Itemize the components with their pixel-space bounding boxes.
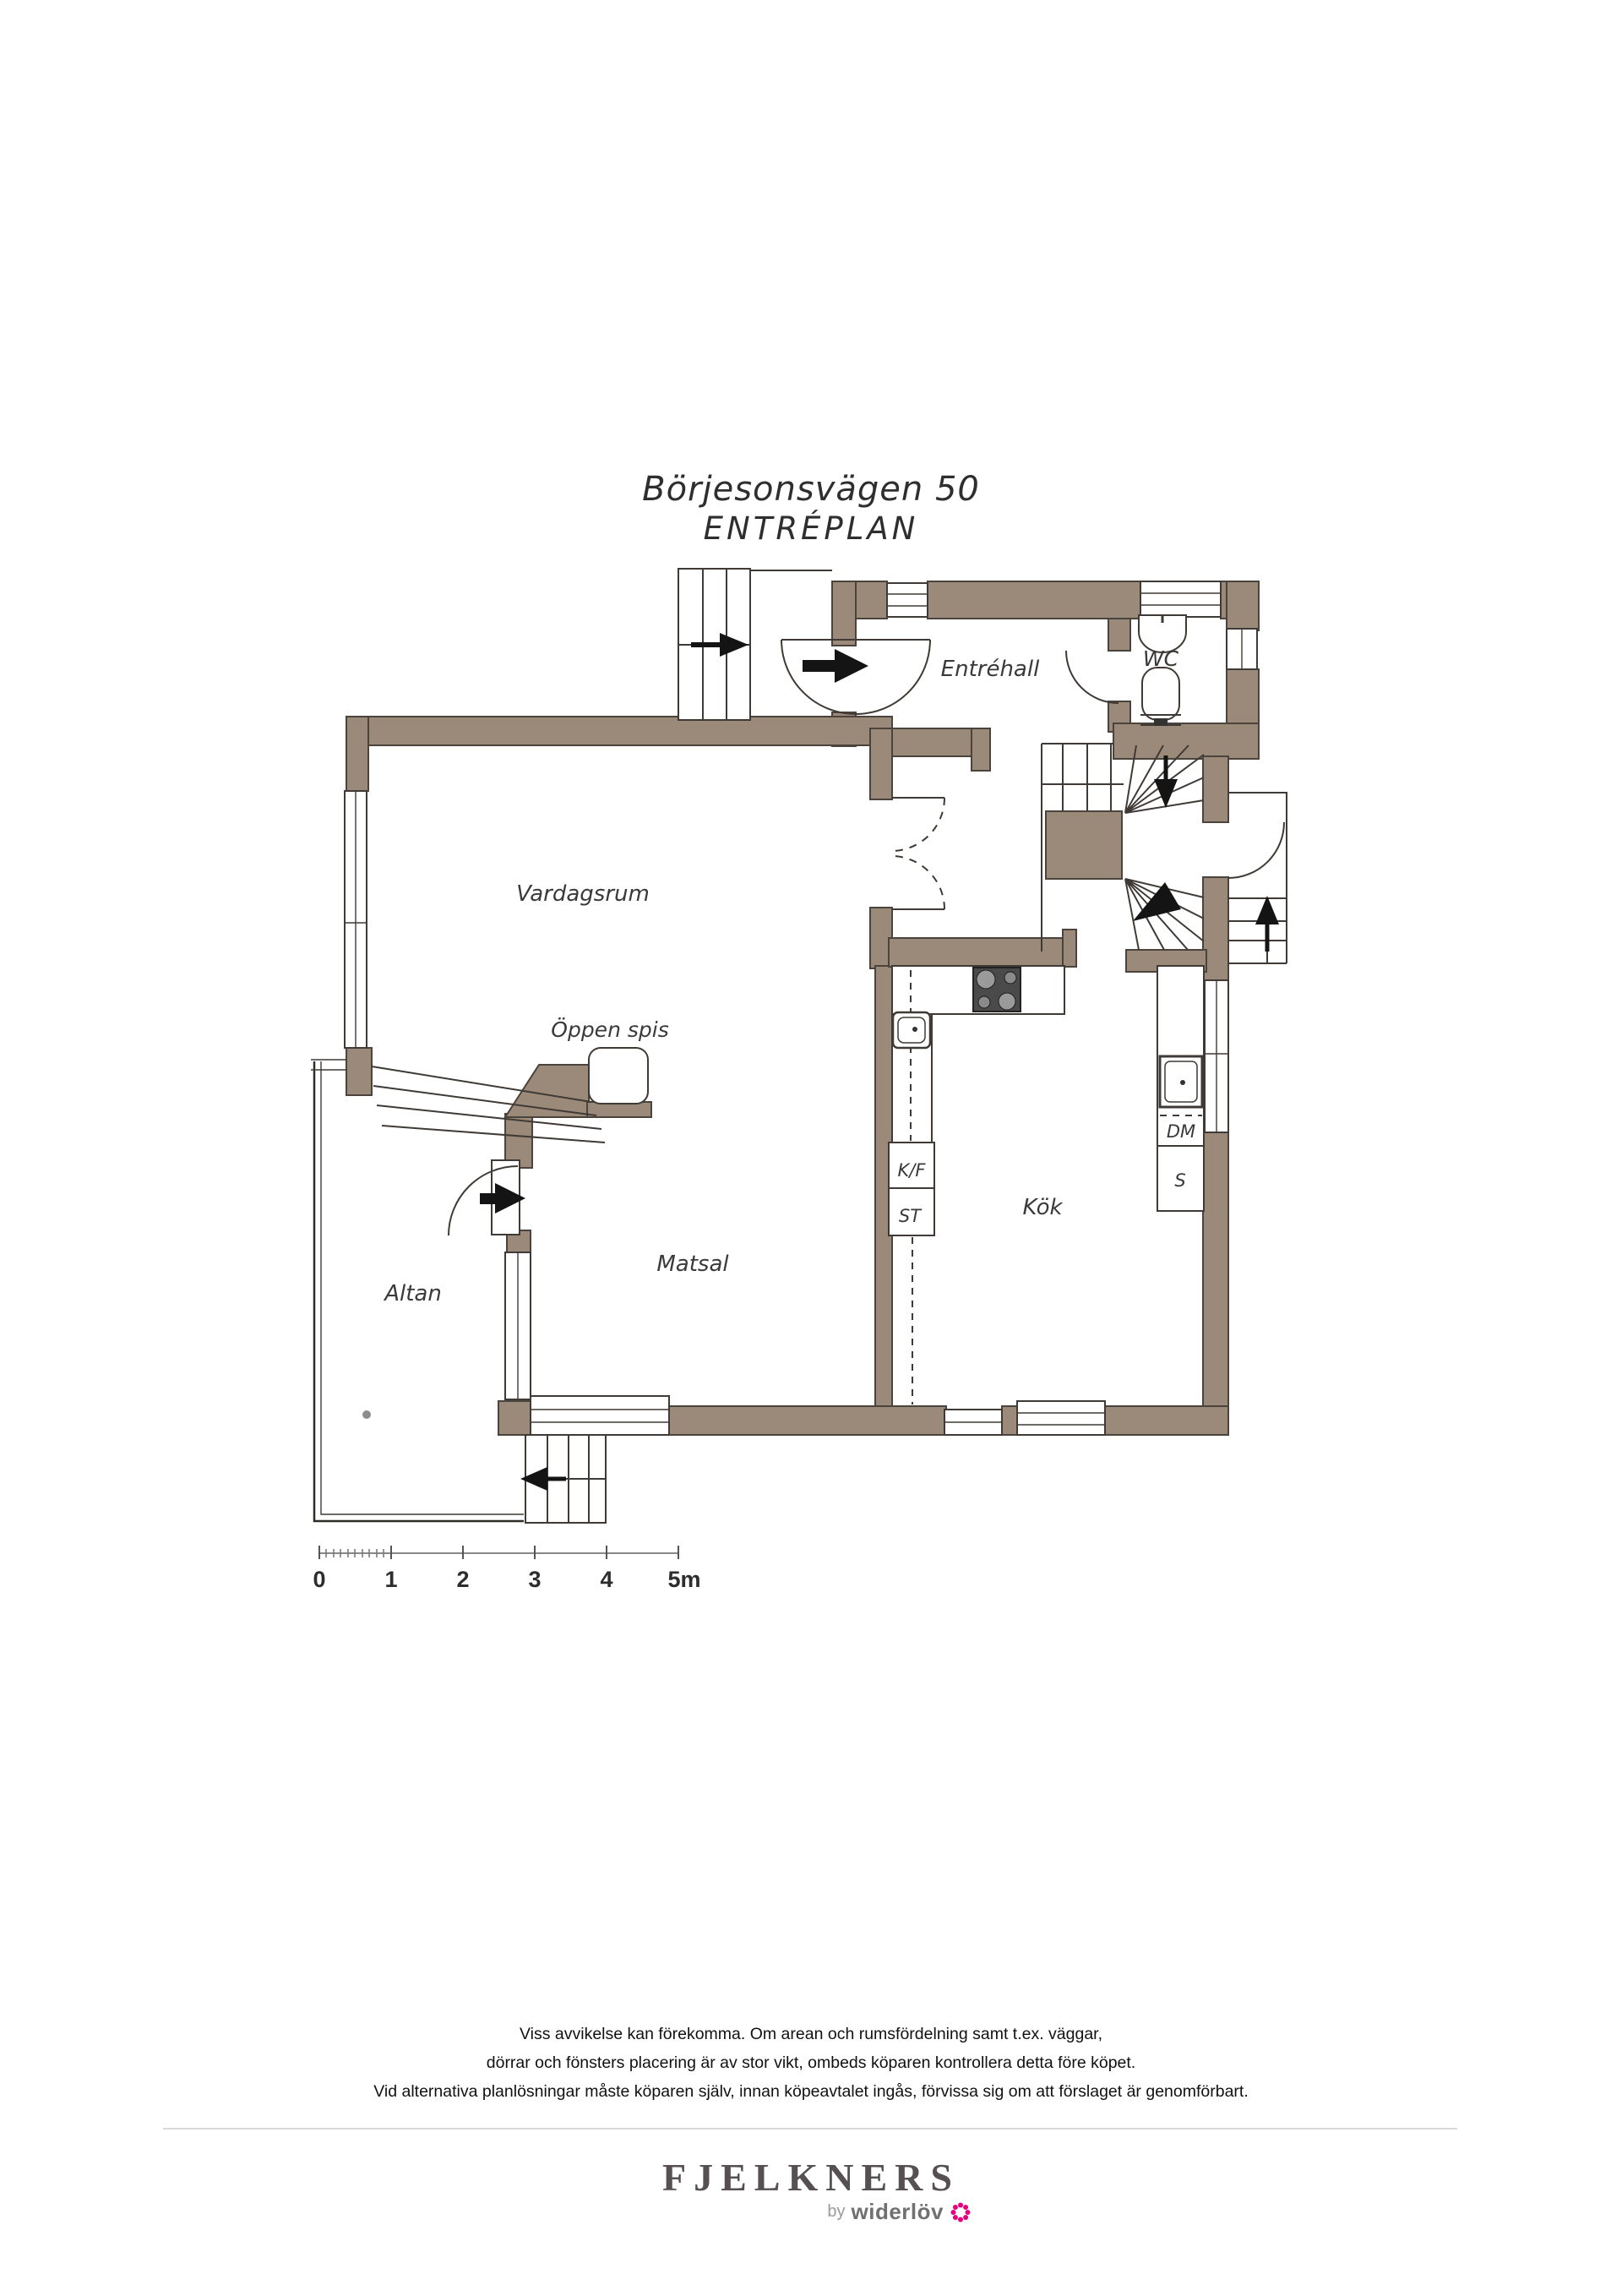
scale-bar: 0 1 2 3 4 5m [313, 1546, 700, 1592]
window [944, 1410, 1002, 1435]
widerlov-flower-icon [950, 2201, 972, 2223]
disclaimer-line-2: dörrar och fönsters placering är av stor… [0, 2048, 1622, 2077]
scale-label-3: 3 [528, 1567, 541, 1592]
stairs-down-arrow [1154, 779, 1178, 808]
brand-logo: FJELKNERS [0, 2155, 1622, 2200]
fixture-label-kf: K/F [898, 1160, 927, 1181]
altan-terrace [311, 1060, 606, 1523]
entry-arrow [835, 649, 868, 683]
address-title: Börjesonsvägen 50 [0, 470, 1622, 509]
double-door-arcs [892, 798, 944, 909]
window [505, 1252, 531, 1399]
wc-door-arc [1066, 651, 1119, 703]
disclaimer-line-1: Viss avvikelse kan förekomma. Om arean o… [0, 2020, 1622, 2048]
byline: by widerlöv [650, 2199, 972, 2225]
room-label-altan: Altan [383, 1281, 442, 1306]
side-door-arc [1228, 822, 1284, 878]
scale-label-4: 4 [600, 1567, 612, 1592]
byline-brand: widerlöv [852, 2199, 944, 2225]
room-label-kok: Kök [1022, 1195, 1063, 1220]
room-label-wc: WC [1143, 646, 1179, 671]
window [1140, 581, 1221, 617]
side-steps-arrow [1255, 896, 1279, 924]
scale-label-1: 1 [384, 1567, 397, 1592]
entry-door-arc [781, 640, 930, 714]
walls [346, 581, 1259, 1435]
room-label-oppen-spis: Öppen spis [551, 1017, 668, 1042]
floor-plan-page: Börjesonsvägen 50 ENTRÉPLAN [0, 0, 1622, 2296]
scale-label-0: 0 [313, 1567, 325, 1592]
scale-label-2: 2 [456, 1567, 469, 1592]
fixture-label-st: ST [899, 1206, 923, 1226]
room-label-vardagsrum: Vardagsrum [516, 881, 650, 907]
window [1227, 629, 1257, 669]
fixture-label-s: S [1174, 1170, 1185, 1191]
plan-title: Börjesonsvägen 50 ENTRÉPLAN [0, 470, 1622, 547]
stove-icon [973, 968, 1021, 1012]
room-label-entrehall: Entréhall [941, 657, 1040, 682]
window [345, 791, 367, 1048]
room-label-matsal: Matsal [656, 1252, 729, 1277]
window [531, 1396, 669, 1435]
footer-divider [163, 2128, 1457, 2130]
dishwasher-icon [1160, 1056, 1202, 1107]
window [1205, 980, 1228, 1132]
toilet-icon [1140, 668, 1181, 726]
disclaimer-text: Viss avvikelse kan förekomma. Om arean o… [0, 2020, 1622, 2106]
disclaimer-line-3: Vid alternativa planlösningar måste köpa… [0, 2077, 1622, 2106]
floor-plan-drawing: Entréhall WC Vardagsrum Öppen spis Altan… [304, 541, 1343, 1606]
scale-label-5m: 5m [667, 1567, 700, 1592]
byline-prefix: by [827, 2202, 845, 2222]
kitchen-fixtures [889, 966, 1204, 1404]
fixture-label-dm: DM [1167, 1121, 1195, 1142]
fireplace-box [589, 1048, 648, 1104]
window [1017, 1401, 1105, 1435]
kitchen-sink-icon [893, 1012, 930, 1048]
terrace-dot [362, 1410, 371, 1419]
window [887, 583, 928, 617]
